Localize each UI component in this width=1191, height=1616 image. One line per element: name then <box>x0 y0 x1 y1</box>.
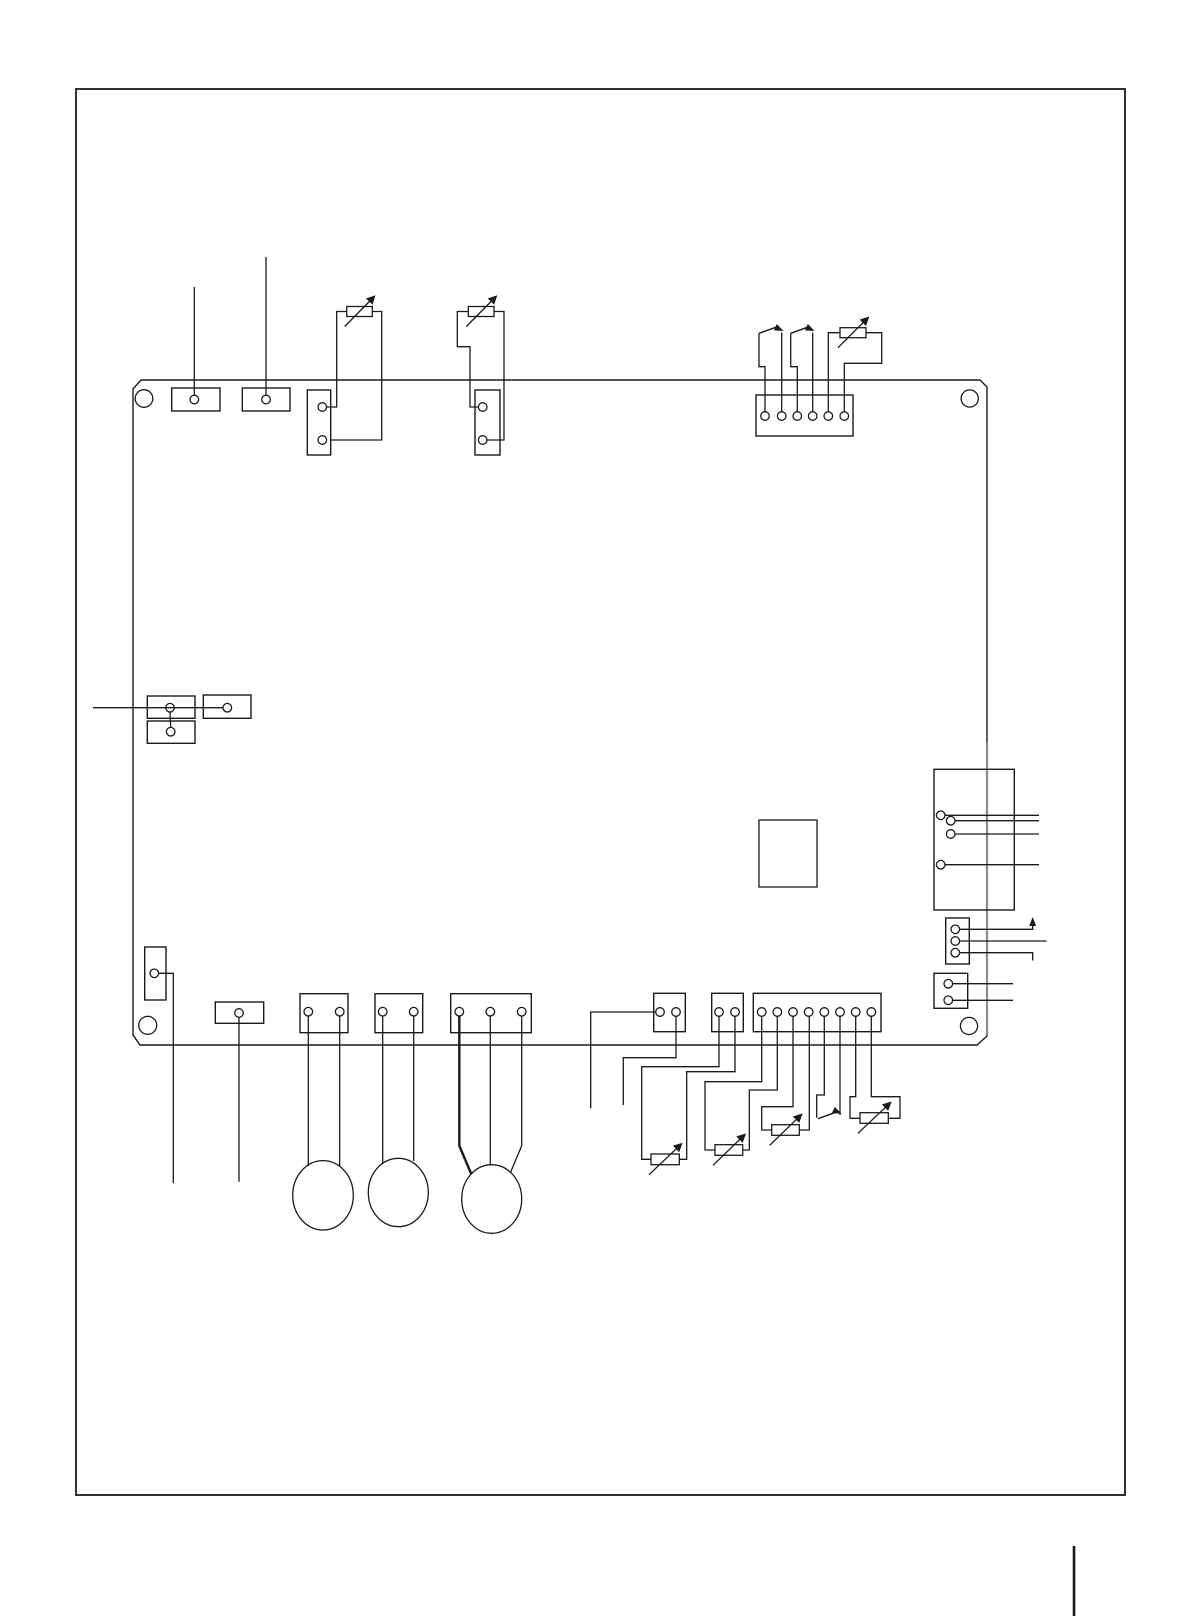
paper-background <box>0 0 1191 1616</box>
schematic-page <box>0 0 1191 1616</box>
wiring-diagram-svg <box>0 0 1191 1616</box>
wire-jumper-link <box>170 712 171 727</box>
